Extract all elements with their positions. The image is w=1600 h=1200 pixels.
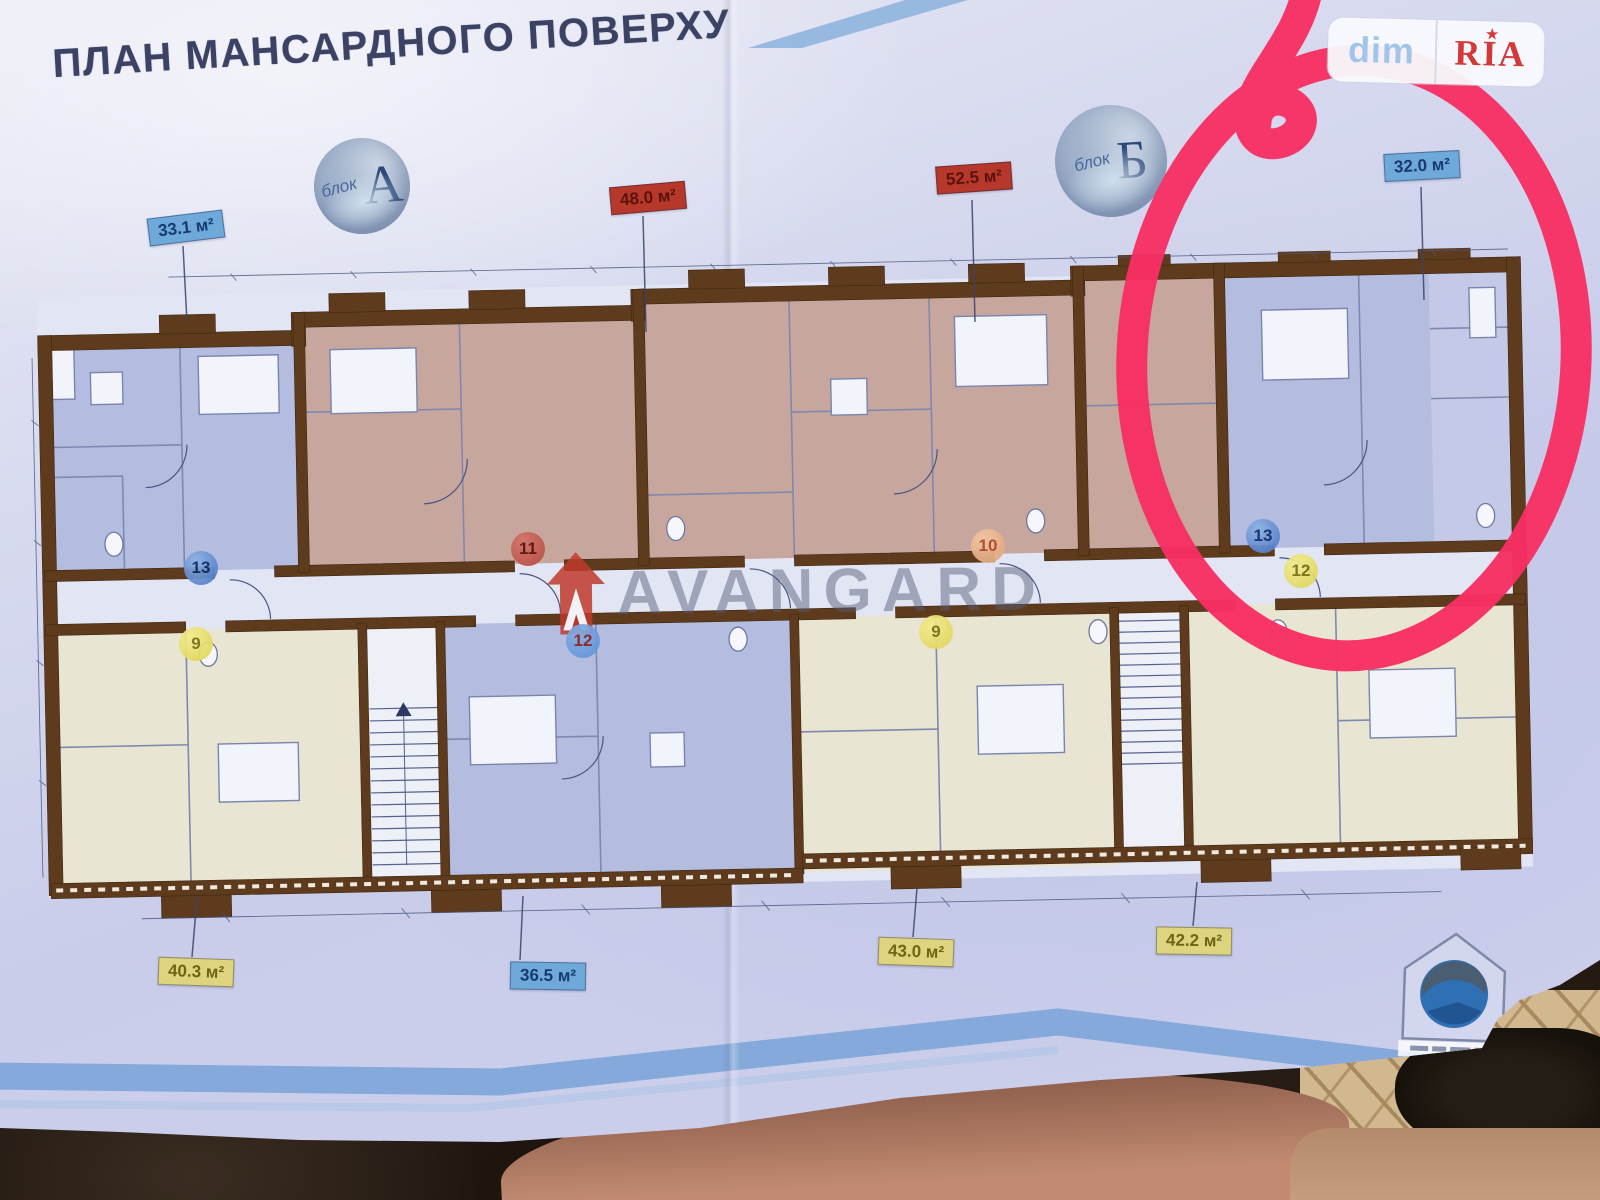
dimria-logo: dim ★ RIA — [1327, 17, 1545, 87]
brochure-page: ПЛАН МАНСАРДНОГО ПОВЕРХУ блок А блок Б — [0, 0, 1600, 1200]
floor-plan-photo: ПЛАН МАНСАРДНОГО ПОВЕРХУ блок А блок Б — [0, 0, 1600, 1200]
dim-text: dim — [1347, 29, 1415, 73]
hand-right — [1290, 1128, 1600, 1200]
ria-logo-half: ★ RIA — [1436, 20, 1545, 87]
page-vignette — [0, 0, 1600, 1200]
dim-logo-half: dim — [1327, 17, 1436, 84]
ria-star-icon: ★ — [1485, 27, 1500, 43]
